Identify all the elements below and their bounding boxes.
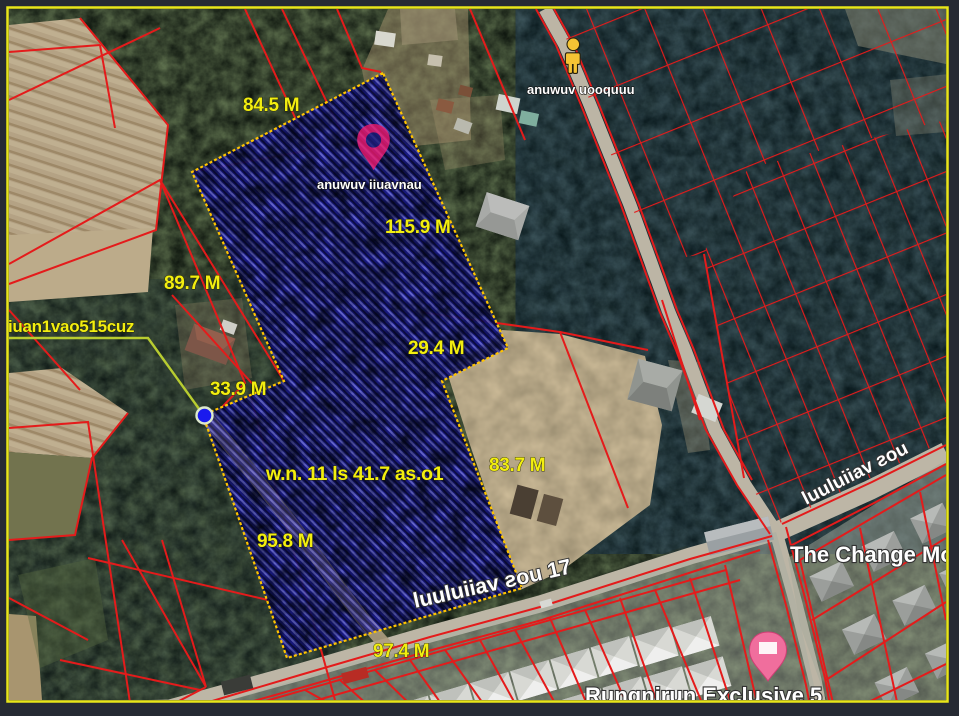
svg-text:w.n. 11 ls 41.7 as.o1: w.n. 11 ls 41.7 as.o1 bbox=[265, 463, 444, 485]
svg-text:84.5 M: 84.5 M bbox=[243, 95, 299, 116]
svg-text:83.7 M: 83.7 M bbox=[489, 455, 545, 476]
svg-text:29.4 M: 29.4 M bbox=[408, 338, 464, 359]
svg-text:anuwuv iiuavnau: anuwuv iiuavnau bbox=[317, 177, 422, 192]
svg-text:The Change Mod: The Change Mod bbox=[790, 542, 959, 567]
svg-text:iuan1vao515cuz: iuan1vao515cuz bbox=[8, 317, 134, 336]
svg-text:89.7 M: 89.7 M bbox=[164, 273, 220, 294]
svg-text:95.8 M: 95.8 M bbox=[257, 531, 313, 552]
svg-text:97.4 M: 97.4 M bbox=[373, 641, 429, 662]
svg-text:115.9 M: 115.9 M bbox=[385, 217, 451, 238]
svg-text:anuwuv uooquuu: anuwuv uooquuu bbox=[527, 82, 635, 97]
svg-text:33.9 M: 33.9 M bbox=[210, 379, 266, 400]
